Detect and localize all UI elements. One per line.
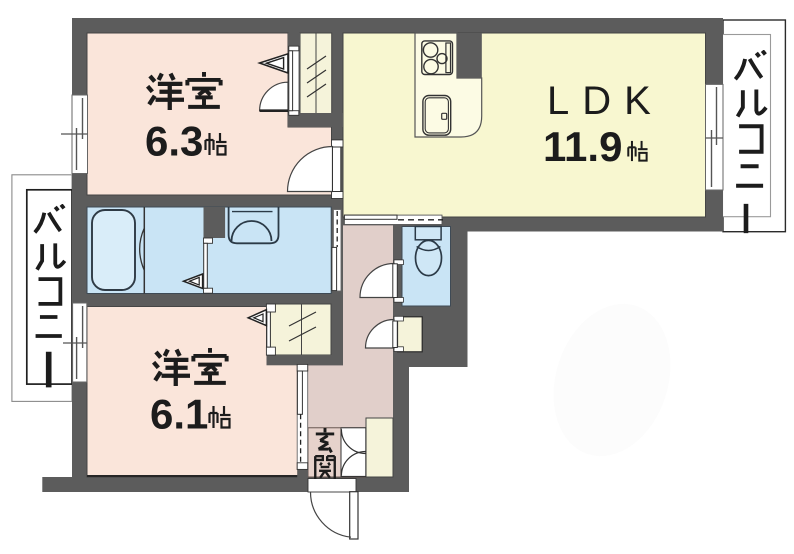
svg-text:LDK: LDK [547, 79, 664, 123]
svg-text:11.9: 11.9 [543, 123, 622, 170]
svg-text:6.1: 6.1 [150, 391, 208, 438]
svg-text:6.3: 6.3 [145, 118, 203, 165]
